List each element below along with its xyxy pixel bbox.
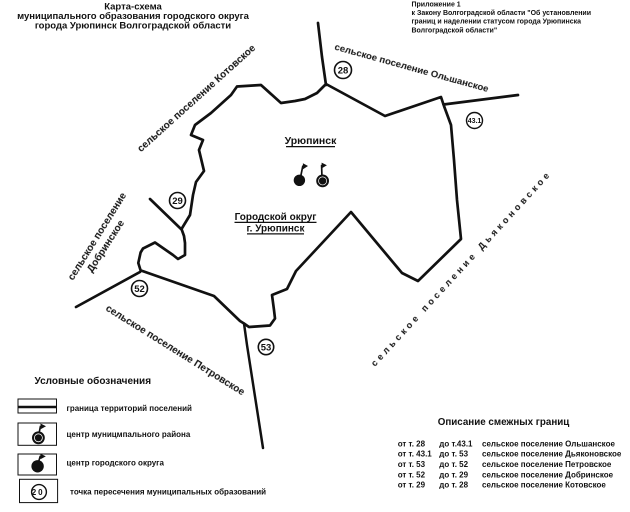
svg-text:границ и наделении статусом го: границ и наделении статусом города Урюпи… <box>412 19 582 26</box>
svg-text:сельское поселение Дьяконовско: сельское поселение Дьяконовское <box>482 450 622 459</box>
svg-text:Описание смежных границ: Описание смежных границ <box>438 417 570 428</box>
svg-text:точка пересечения муниципальны: точка пересечения муниципальных образова… <box>70 488 266 497</box>
svg-text:сельское поселение Котовское: сельское поселение Котовское <box>482 481 606 490</box>
svg-text:г. Урюпинск: г. Урюпинск <box>246 224 305 235</box>
svg-text:сельское поселение Петровское: сельское поселение Петровское <box>482 460 612 469</box>
svg-text:от т. 52: от т. 52 <box>398 470 426 479</box>
svg-text:43.1: 43.1 <box>468 118 482 125</box>
svg-text:20: 20 <box>32 488 45 497</box>
svg-text:сельское поселение Добринское: сельское поселение Добринское <box>482 470 614 479</box>
svg-text:до т.43.1: до т.43.1 <box>439 439 473 448</box>
svg-text:граница территорий поселений: граница территорий поселений <box>67 404 192 413</box>
svg-text:Волгоградской области": Волгоградской области" <box>412 26 498 34</box>
svg-text:Условные обозначения: Условные обозначения <box>35 375 152 387</box>
svg-text:сельское поселение Ольшанское: сельское поселение Ольшанское <box>482 439 615 448</box>
svg-text:от т. 53: от т. 53 <box>398 460 426 469</box>
svg-text:до т. 29: до т. 29 <box>439 470 468 479</box>
svg-text:к Закону Волгоградской области: к Закону Волгоградской области "Об устан… <box>412 9 592 17</box>
svg-text:Городской округ: Городской округ <box>235 212 317 223</box>
svg-text:от т. 43.1: от т. 43.1 <box>398 450 433 459</box>
svg-text:центр городского округа: центр городского округа <box>67 459 165 468</box>
svg-text:52: 52 <box>134 284 145 295</box>
svg-text:53: 53 <box>261 343 272 354</box>
svg-text:от т. 28: от т. 28 <box>398 439 426 448</box>
svg-text:28: 28 <box>338 66 349 77</box>
svg-text:до т. 53: до т. 53 <box>439 450 468 459</box>
svg-text:города Урюпинск Волгоградской: города Урюпинск Волгоградской области <box>35 20 231 31</box>
svg-text:до т. 28: до т. 28 <box>439 481 468 490</box>
svg-text:29: 29 <box>172 196 183 207</box>
svg-text:центр муницмпального района: центр муницмпального района <box>67 430 191 439</box>
svg-text:до т. 52: до т. 52 <box>439 460 468 469</box>
svg-text:Приложение 1: Приложение 1 <box>412 2 461 9</box>
svg-text:Урюпинск: Урюпинск <box>285 135 337 147</box>
svg-text:от т. 29: от т. 29 <box>398 481 426 490</box>
